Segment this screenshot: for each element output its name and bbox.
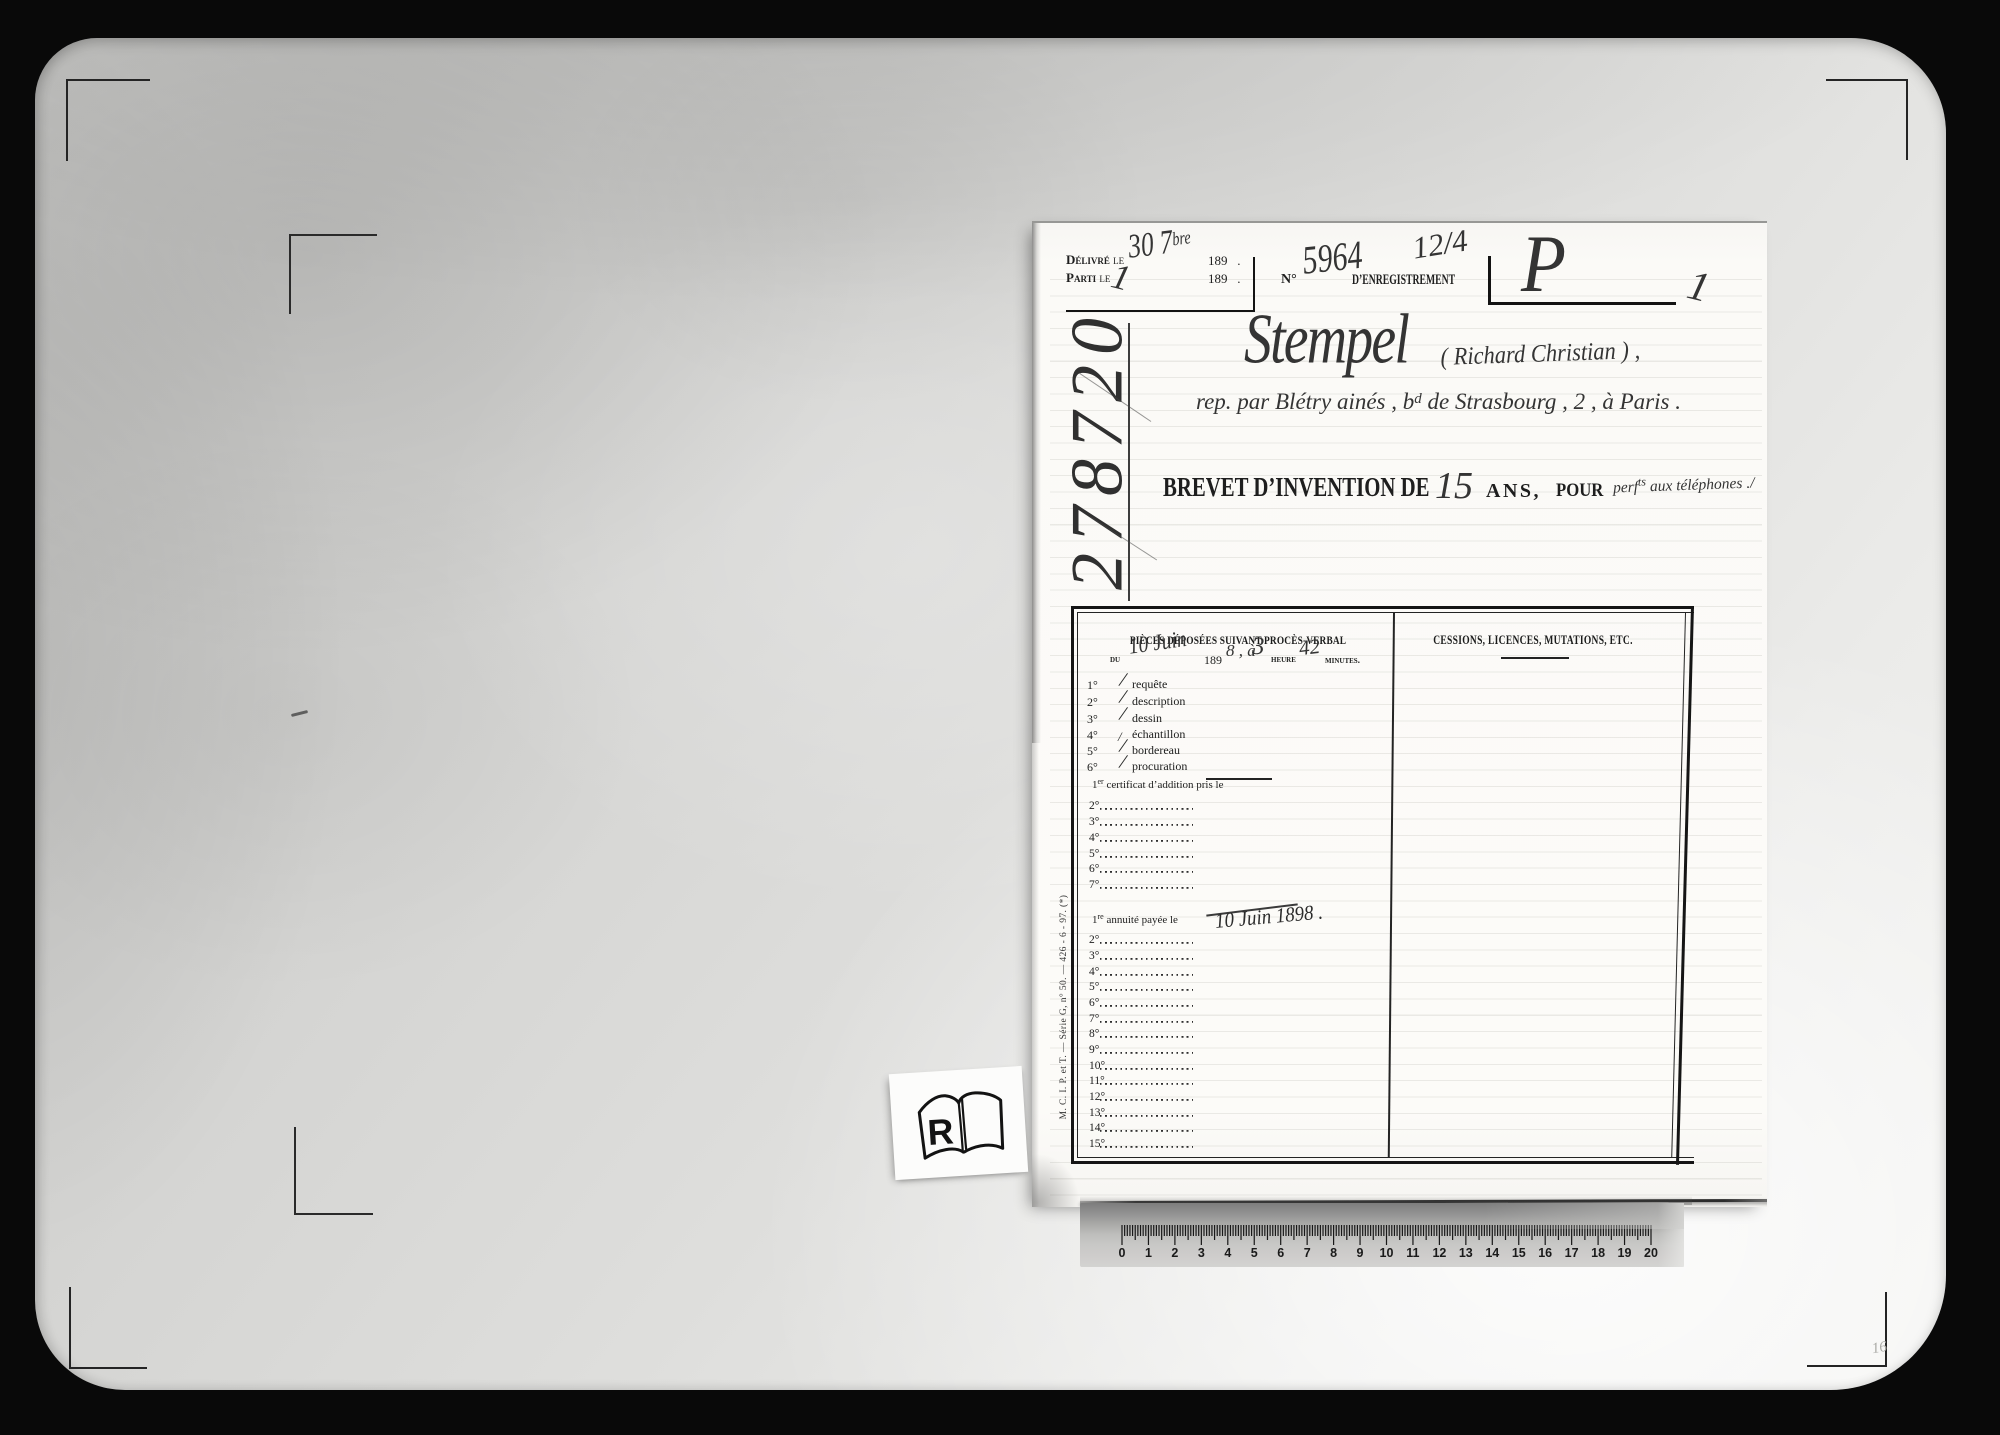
svg-text:R: R bbox=[926, 1110, 955, 1153]
svg-text:2: 2 bbox=[1171, 1246, 1178, 1260]
svg-text:10: 10 bbox=[1380, 1246, 1394, 1260]
svg-text:18: 18 bbox=[1591, 1246, 1605, 1260]
svg-text:8: 8 bbox=[1330, 1246, 1337, 1260]
svg-text:20: 20 bbox=[1644, 1246, 1658, 1260]
svg-text:9: 9 bbox=[1357, 1246, 1364, 1260]
svg-text:6: 6 bbox=[1277, 1246, 1284, 1260]
svg-text:5: 5 bbox=[1251, 1246, 1258, 1260]
svg-text:16: 16 bbox=[1538, 1246, 1552, 1260]
svg-text:13: 13 bbox=[1459, 1246, 1473, 1260]
svg-text:19: 19 bbox=[1618, 1246, 1632, 1260]
svg-text:7: 7 bbox=[1304, 1246, 1311, 1260]
svg-text:1: 1 bbox=[1145, 1246, 1152, 1260]
svg-text:15: 15 bbox=[1512, 1246, 1526, 1260]
svg-text:14: 14 bbox=[1485, 1246, 1499, 1260]
svg-text:17: 17 bbox=[1565, 1246, 1579, 1260]
svg-text:3: 3 bbox=[1198, 1246, 1205, 1260]
svg-text:4: 4 bbox=[1224, 1246, 1231, 1260]
svg-text:11: 11 bbox=[1406, 1246, 1419, 1260]
svg-text:12: 12 bbox=[1432, 1246, 1446, 1260]
svg-text:0: 0 bbox=[1119, 1246, 1126, 1260]
